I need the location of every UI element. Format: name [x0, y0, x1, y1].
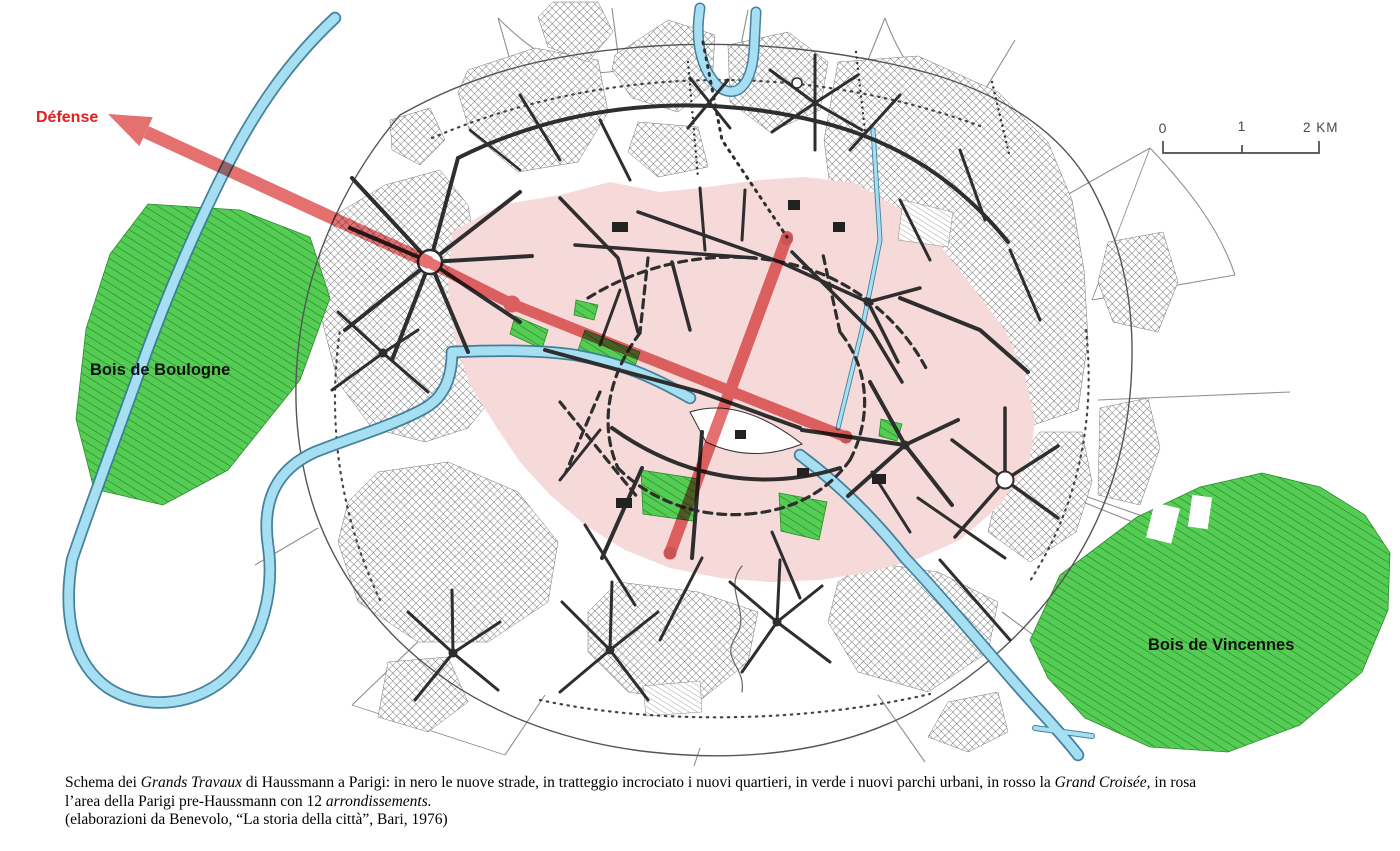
figure-caption: Schema dei Grands Travaux di Haussmann a…: [65, 774, 1395, 830]
defense-label: Défense: [36, 109, 98, 126]
caption-line-3: (elaborazioni da Benevolo, “La storia de…: [65, 811, 1395, 830]
caption-text: l’area della Parigi pre-Haussmann con 12: [65, 793, 326, 810]
caption-line-1: Schema dei Grands Travaux di Haussmann a…: [65, 774, 1395, 793]
paris-map: Défense Bois de Boulogne Bois de Vincenn…: [0, 0, 1400, 768]
scale-tick-0: 0: [1159, 120, 1168, 136]
caption-text: Schema dei: [65, 774, 141, 791]
bois-de-vincennes-label: Bois de Vincennes: [1148, 636, 1294, 654]
caption-line-2: l’area della Parigi pre-Haussmann con 12…: [65, 793, 1395, 812]
scale-tick-1: 1: [1238, 118, 1247, 134]
place-nation: [997, 472, 1014, 489]
caption-italic: Grand Croisée: [1055, 774, 1147, 791]
scale-tick-2km: 2 KM: [1303, 120, 1339, 135]
caption-text: (elaborazioni da Benevolo, “La storia de…: [65, 811, 448, 828]
bois-de-boulogne-label: Bois de Boulogne: [90, 361, 230, 379]
scale-bar: 0 1 2 KM: [1159, 118, 1339, 153]
caption-italic: arrondissements.: [326, 793, 432, 810]
bois-de-vincennes-area: [1030, 473, 1390, 752]
caption-text: , in rosa: [1147, 774, 1197, 791]
caption-italic: Grands Travaux: [141, 774, 242, 791]
defense-arrowhead: [108, 114, 153, 146]
caption-text: di Haussmann a Parigi: in nero le nuove …: [242, 774, 1055, 791]
haussmann-map-figure: Défense Bois de Boulogne Bois de Vincenn…: [0, 0, 1400, 851]
